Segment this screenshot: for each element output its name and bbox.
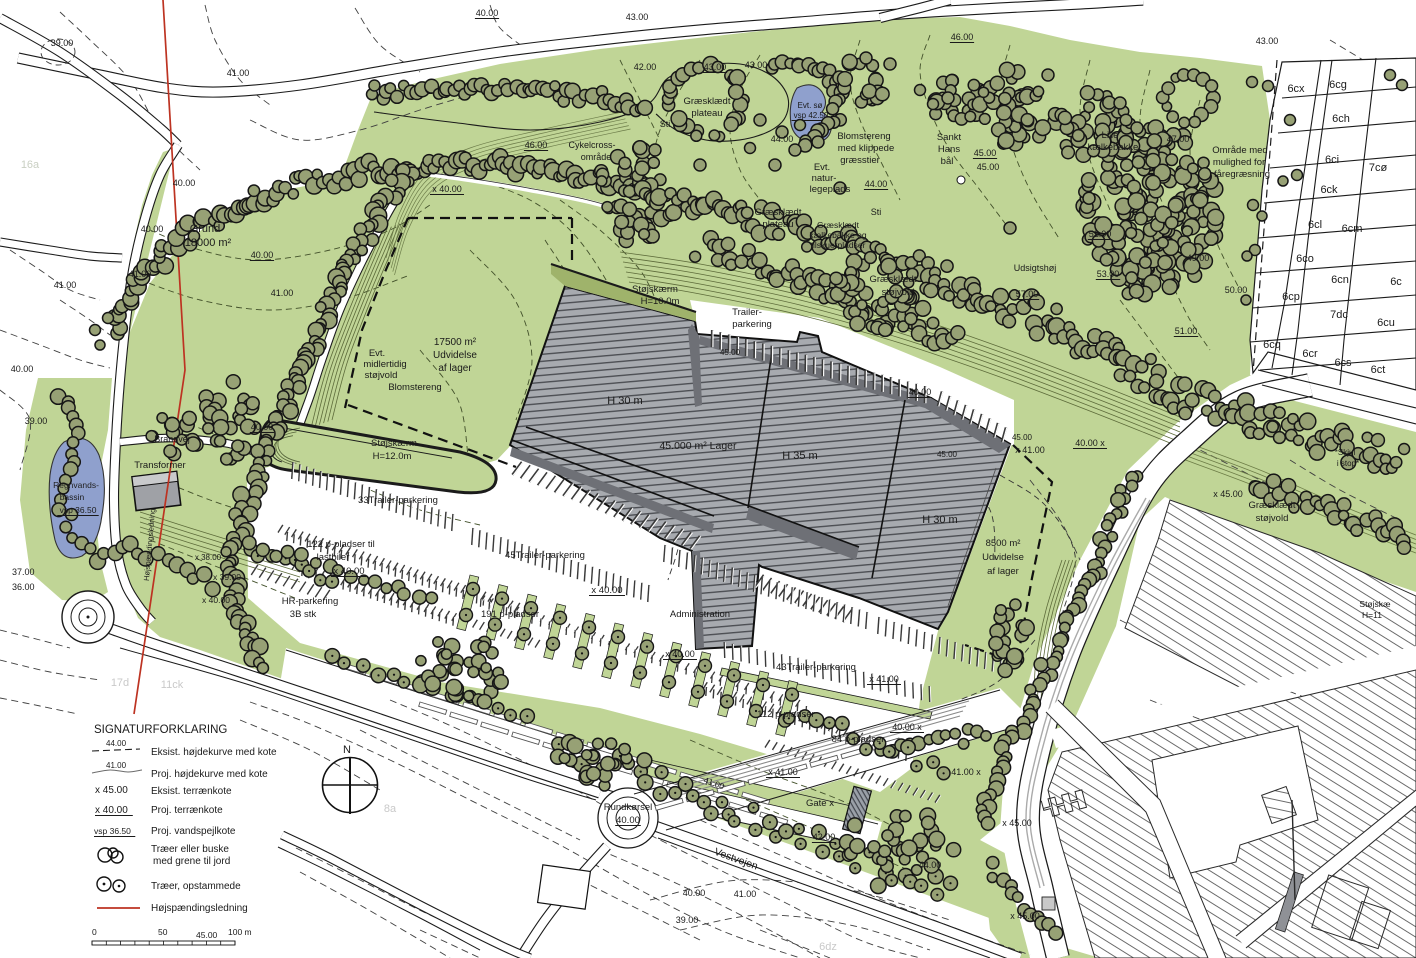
svg-text:6ch: 6ch (1332, 113, 1350, 125)
svg-text:med klippede: med klippede (838, 143, 895, 154)
svg-text:x 45.00: x 45.00 (1002, 818, 1032, 828)
svg-text:x 45.00: x 45.00 (1010, 911, 1040, 921)
svg-text:N: N (343, 744, 351, 756)
svg-text:Græsklædt: Græsklædt (684, 96, 731, 107)
svg-text:39.00: 39.00 (25, 416, 48, 426)
svg-text:6cl: 6cl (1308, 219, 1322, 231)
svg-text:Græsklædt: Græsklædt (1249, 500, 1296, 511)
svg-text:50.00: 50.00 (1225, 285, 1248, 295)
svg-text:6ci: 6ci (1325, 154, 1339, 166)
svg-text:40.00: 40.00 (909, 387, 932, 397)
svg-text:støjvold: støjvold (365, 370, 398, 381)
svg-text:11ck: 11ck (161, 679, 184, 691)
svg-text:legeplads: legeplads (810, 184, 851, 195)
svg-text:støjvold: støjvold (1256, 513, 1289, 524)
svg-text:40.00: 40.00 (173, 178, 196, 188)
svg-text:Udsigtshøj: Udsigtshøj (1014, 263, 1057, 273)
svg-text:Område med: Område med (1212, 145, 1267, 156)
svg-text:plateau: plateau (762, 219, 793, 230)
svg-text:x 40.00: x 40.00 (432, 184, 462, 194)
svg-text:kælkebakke og: kælkebakke og (809, 230, 866, 240)
svg-text:Støjskæ: Støjskæ (1359, 599, 1391, 609)
svg-text:SIGNATURFORKLARING: SIGNATURFORKLARING (94, 724, 227, 736)
svg-text:40.00: 40.00 (616, 815, 640, 826)
svg-text:Græsklædt: Græsklædt (817, 220, 860, 230)
svg-text:44.00: 44.00 (865, 179, 888, 189)
svg-text:H=10.0m: H=10.0m (641, 296, 680, 307)
svg-text:x 41.00: x 41.00 (869, 674, 899, 684)
svg-text:6c: 6c (1390, 276, 1402, 288)
svg-text:mulighed for: mulighed for (1213, 157, 1265, 168)
svg-text:40.00: 40.00 (141, 224, 164, 234)
svg-text:43.00: 43.00 (745, 60, 768, 70)
svg-text:Transformer: Transformer (134, 460, 185, 471)
svg-text:45.00: 45.00 (937, 450, 958, 459)
svg-text:vsp 36.50: vsp 36.50 (94, 826, 131, 836)
svg-text:x 45.00: x 45.00 (95, 785, 128, 796)
svg-text:45.000 m² Lager: 45.000 m² Lager (659, 440, 737, 452)
svg-text:42.00: 42.00 (813, 832, 836, 842)
svg-text:Udvidelse: Udvidelse (433, 350, 477, 361)
svg-text:Gate x: Gate x (806, 798, 834, 809)
svg-text:x 40.00: x 40.00 (333, 566, 364, 577)
svg-text:46.00: 46.00 (951, 32, 974, 42)
svg-text:område: område (581, 152, 612, 162)
svg-text:kælkebakke: kælkebakke (1088, 142, 1139, 153)
svg-text:x 39.00: x 39.00 (213, 572, 241, 582)
svg-text:0: 0 (92, 927, 97, 937)
svg-text:46.00: 46.00 (525, 140, 548, 150)
svg-text:6cm: 6cm (1342, 223, 1363, 235)
svg-text:x 40.00: x 40.00 (591, 585, 622, 596)
svg-text:40.00: 40.00 (251, 250, 274, 260)
svg-text:tilskuerpladser: tilskuerpladser (811, 240, 866, 250)
svg-text:Blomstereng: Blomstereng (388, 382, 441, 393)
svg-text:af lager: af lager (987, 566, 1019, 577)
svg-text:40.00 x: 40.00 x (1075, 438, 1105, 448)
svg-text:Støjskærm: Støjskærm (632, 284, 678, 295)
svg-text:6cp: 6cp (1282, 291, 1300, 303)
svg-text:42.00: 42.00 (634, 62, 657, 72)
svg-text:17500 m²: 17500 m² (434, 337, 477, 348)
svg-text:45.00: 45.00 (196, 930, 218, 940)
svg-text:6ct: 6ct (1371, 364, 1386, 376)
svg-text:33Trailer-parkering: 33Trailer-parkering (358, 495, 438, 506)
svg-text:43Trailer-parkering: 43Trailer-parkering (776, 662, 856, 673)
svg-text:191 p-pladser: 191 p-pladser (481, 609, 539, 620)
svg-text:Proj. højdekurve med kote: Proj. højdekurve med kote (151, 769, 268, 780)
svg-text:18000 m²: 18000 m² (185, 237, 232, 249)
svg-text:40.00: 40.00 (476, 8, 499, 18)
svg-text:x 38.00: x 38.00 (195, 553, 222, 562)
svg-text:Lille: Lille (1102, 130, 1119, 141)
svg-text:natur-: natur- (812, 173, 837, 184)
svg-text:Evt.: Evt. (369, 348, 385, 359)
svg-text:H 30 m: H 30 m (922, 514, 957, 526)
svg-text:bassin: bassin (60, 492, 85, 502)
svg-text:Brandvej: Brandvej (154, 434, 190, 444)
svg-text:43.00: 43.00 (626, 12, 649, 22)
svg-text:af lager: af lager (438, 363, 472, 374)
svg-text:6cu: 6cu (1377, 317, 1395, 329)
svg-text:52.00: 52.00 (1089, 229, 1112, 239)
svg-text:Sti: Sti (660, 119, 671, 129)
svg-text:Regnvands-: Regnvands- (53, 480, 99, 490)
svg-text:H 30 m: H 30 m (607, 395, 642, 407)
svg-text:Sankt: Sankt (937, 132, 962, 143)
svg-text:36.00: 36.00 (12, 582, 35, 592)
svg-text:6co: 6co (1296, 253, 1314, 265)
svg-text:H=12.0m: H=12.0m (373, 451, 412, 462)
svg-text:39.00: 39.00 (676, 915, 699, 925)
svg-text:6dz: 6dz (819, 941, 837, 953)
svg-text:midlertidig: midlertidig (363, 359, 406, 370)
svg-text:8a: 8a (384, 803, 397, 815)
svg-text:40.00 x: 40.00 x (892, 722, 922, 732)
svg-text:112 p-pladser: 112 p-pladser (757, 709, 814, 720)
svg-text:122 p-pladser til: 122 p-pladser til (307, 539, 375, 550)
svg-text:8500 m²: 8500 m² (986, 538, 1021, 549)
svg-text:53.00: 53.00 (1097, 269, 1120, 279)
svg-text:græsstier: græsstier (840, 155, 880, 166)
svg-text:Proj. vandspejlkote: Proj. vandspejlkote (151, 826, 236, 837)
svg-text:lastbiler: lastbiler (317, 552, 350, 563)
svg-text:bål: bål (941, 156, 954, 167)
svg-text:84 p-pladser: 84 p-pladser (832, 734, 885, 745)
svg-text:Cykelcross-: Cykelcross- (568, 140, 615, 150)
svg-text:x 40.00: x 40.00 (95, 805, 128, 816)
svg-text:plateau: plateau (691, 108, 722, 119)
svg-text:x 40.00: x 40.00 (202, 595, 230, 605)
svg-text:6cn: 6cn (1331, 274, 1349, 286)
svg-text:41.00: 41.00 (271, 288, 294, 298)
svg-text:7dc: 7dc (1330, 309, 1348, 321)
svg-text:37.00: 37.00 (12, 567, 35, 577)
svg-text:Grund: Grund (190, 223, 221, 235)
svg-text:parkering: parkering (732, 319, 772, 330)
svg-text:Proj. terrænkote: Proj. terrænkote (151, 805, 223, 816)
svg-text:x 40.00: x 40.00 (665, 649, 695, 659)
svg-text:45.00: 45.00 (720, 348, 741, 357)
svg-text:Højspændingsledning: Højspændingsledning (151, 903, 248, 914)
svg-text:x 45.00: x 45.00 (1213, 489, 1243, 499)
svg-text:x 41.00: x 41.00 (1015, 445, 1045, 455)
svg-text:44.00: 44.00 (771, 134, 794, 144)
svg-text:i stop*: i stop* (1337, 459, 1359, 468)
svg-text:40.00: 40.00 (683, 888, 706, 898)
svg-text:Græsklædt: Græsklædt (870, 274, 917, 285)
svg-text:45Trailer-parkering: 45Trailer-parkering (505, 550, 585, 561)
svg-text:41.00: 41.00 (106, 761, 127, 770)
svg-text:H 35 m: H 35 m (782, 450, 817, 462)
svg-text:3B stk: 3B stk (290, 609, 317, 620)
svg-text:x 41.00: x 41.00 (768, 767, 798, 777)
svg-text:6cg: 6cg (1329, 79, 1347, 91)
svg-text:Eksist. højdekurve med kote: Eksist. højdekurve med kote (151, 747, 277, 758)
svg-text:41.00: 41.00 (734, 889, 757, 899)
svg-text:6cq: 6cq (1263, 339, 1281, 351)
svg-text:vsp 36.50: vsp 36.50 (60, 505, 97, 515)
svg-text:Trailer-: Trailer- (732, 307, 762, 318)
svg-text:7cø: 7cø (1369, 162, 1388, 174)
svg-text:49.00: 49.00 (1187, 253, 1210, 263)
svg-text:44.00: 44.00 (106, 739, 127, 748)
svg-text:Eksist. terrænkote: Eksist. terrænkote (151, 786, 232, 797)
svg-text:H=11: H=11 (1362, 610, 1382, 620)
svg-text:*Skjul: *Skjul (1335, 448, 1356, 457)
svg-text:100 m: 100 m (228, 927, 252, 937)
svg-text:Blomstereng: Blomstereng (837, 131, 890, 142)
svg-text:Evt.: Evt. (814, 162, 830, 173)
svg-text:6cr: 6cr (1302, 348, 1318, 360)
svg-text:41.00: 41.00 (129, 269, 152, 279)
svg-text:51.00: 51.00 (1175, 326, 1198, 336)
svg-text:45.00: 45.00 (977, 162, 1000, 172)
svg-text:43.00: 43.00 (1256, 36, 1279, 46)
svg-text:43.00: 43.00 (704, 62, 727, 72)
svg-text:6cx: 6cx (1287, 83, 1305, 95)
svg-text:med grene til jord: med grene til jord (153, 856, 230, 867)
svg-text:Hans: Hans (938, 144, 960, 155)
svg-text:44.00: 44.00 (919, 860, 942, 870)
svg-text:41.00 x: 41.00 x (951, 767, 981, 777)
svg-text:41.00: 41.00 (227, 68, 250, 78)
svg-text:Træer, opstammede: Træer, opstammede (151, 881, 241, 892)
svg-text:Støjskærm: Støjskærm (371, 438, 417, 449)
svg-text:41.00: 41.00 (54, 280, 77, 290)
svg-text:støjvold: støjvold (882, 287, 915, 298)
svg-text:Sti: Sti (871, 207, 882, 217)
svg-text:6cs: 6cs (1334, 357, 1352, 369)
svg-text:fåregræsning: fåregræsning (1214, 169, 1270, 180)
svg-text:Rundkørsel: Rundkørsel (604, 802, 653, 813)
svg-text:17d: 17d (111, 677, 129, 689)
svg-text:Udvidelse: Udvidelse (982, 552, 1024, 563)
svg-text:Evt. sø: Evt. sø (798, 101, 823, 110)
svg-text:16a: 16a (21, 159, 40, 171)
svg-text:47.00: 47.00 (1167, 134, 1190, 144)
svg-text:57.00: 57.00 (1016, 289, 1039, 299)
svg-text:Administration: Administration (670, 609, 730, 620)
svg-text:40.00: 40.00 (11, 364, 34, 374)
svg-text:Træer eller buske: Træer eller buske (151, 844, 229, 855)
svg-text:6ck: 6ck (1320, 184, 1338, 196)
svg-text:HR-parkering: HR-parkering (282, 596, 339, 607)
svg-text:Græsklædt: Græsklædt (755, 207, 802, 218)
svg-text:40.00: 40.00 (251, 422, 274, 432)
svg-text:45.00: 45.00 (1012, 433, 1033, 442)
svg-text:50: 50 (158, 927, 168, 937)
svg-text:45.00: 45.00 (974, 148, 997, 158)
